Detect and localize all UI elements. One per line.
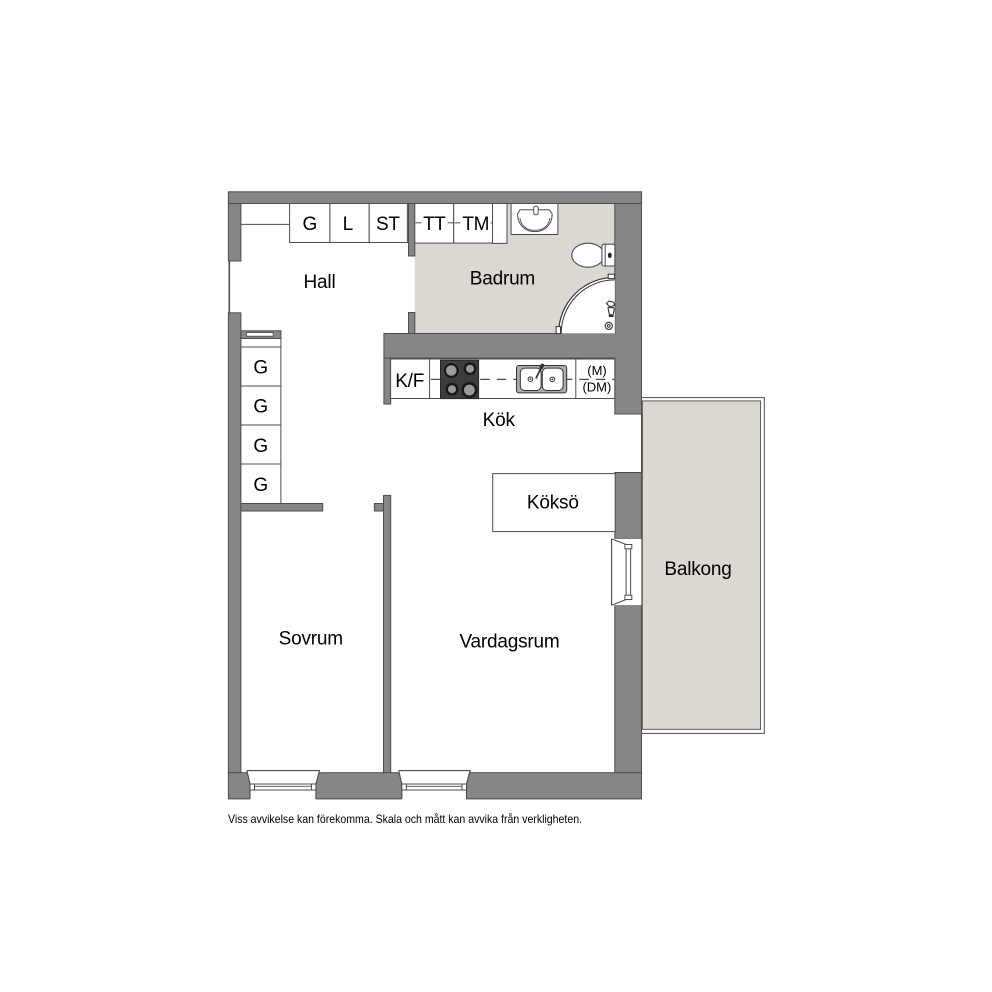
svg-text:Kök: Kök xyxy=(483,410,516,431)
svg-text:Badrum: Badrum xyxy=(470,268,535,289)
svg-text:G: G xyxy=(253,397,268,418)
svg-text:Viss avvikelse kan förekomma.: Viss avvikelse kan förekomma. Skala och … xyxy=(228,812,582,826)
svg-text:Köksö: Köksö xyxy=(527,492,579,513)
svg-text:Sovrum: Sovrum xyxy=(279,629,343,650)
svg-text:L: L xyxy=(343,214,354,235)
svg-text:G: G xyxy=(253,436,268,457)
svg-text:Vardagsrum: Vardagsrum xyxy=(459,632,559,653)
svg-text:K/F: K/F xyxy=(395,371,424,392)
svg-text:(DM): (DM) xyxy=(582,380,611,395)
svg-text:G: G xyxy=(303,214,318,235)
svg-text:(M): (M) xyxy=(587,363,607,378)
svg-text:G: G xyxy=(253,475,268,496)
svg-text:G: G xyxy=(253,358,268,379)
svg-text:Balkong: Balkong xyxy=(664,559,731,580)
svg-text:TT: TT xyxy=(423,214,446,235)
svg-text:ST: ST xyxy=(376,214,400,235)
svg-text:TM: TM xyxy=(462,214,489,235)
svg-text:Hall: Hall xyxy=(304,272,336,293)
